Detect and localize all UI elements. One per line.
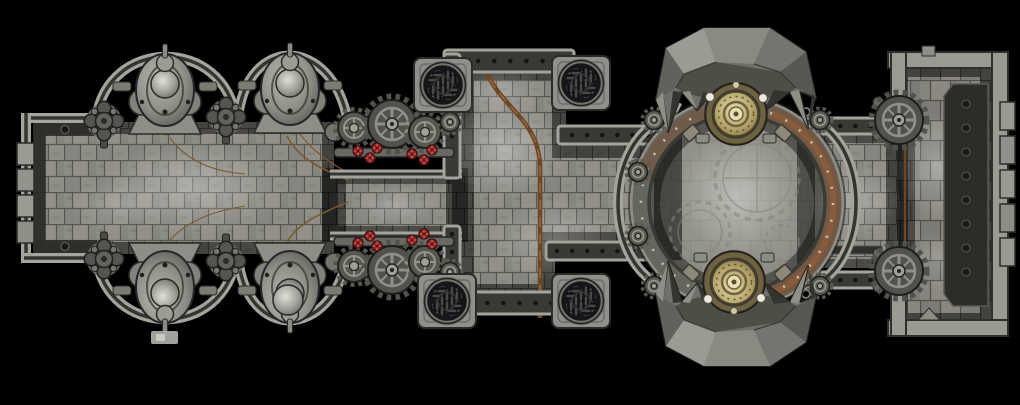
steam-vent <box>414 58 472 112</box>
steam-vent <box>552 56 610 110</box>
steam-vent <box>552 274 610 328</box>
pod-sphere <box>273 285 303 315</box>
deco-gear <box>627 161 649 183</box>
map-canvas: Industrial gothic corridor battle map, t… <box>0 0 1020 405</box>
battle-map-image: Industrial gothic corridor battle map, t… <box>0 0 1020 405</box>
wall-inset-band <box>33 123 45 253</box>
wall-boss <box>61 126 69 134</box>
right-room-panel <box>944 84 988 306</box>
crenellation-blocks <box>1000 102 1015 266</box>
wall-boss <box>61 243 69 251</box>
artifact-block <box>151 331 178 344</box>
deco-gear <box>809 109 831 131</box>
steam-vent <box>418 274 476 328</box>
frame-tab <box>922 46 935 56</box>
deco-gear <box>627 225 649 247</box>
